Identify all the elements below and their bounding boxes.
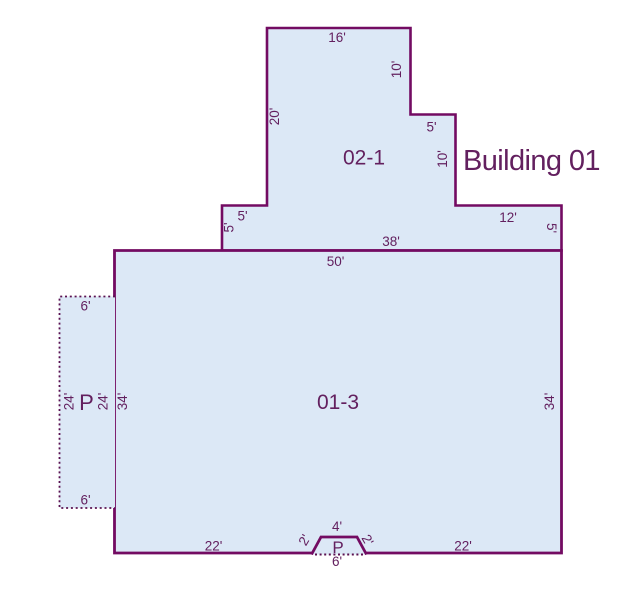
svg-text:24': 24' xyxy=(96,393,111,411)
svg-text:5': 5' xyxy=(237,209,247,224)
svg-text:34': 34' xyxy=(115,393,130,411)
svg-text:38': 38' xyxy=(382,234,400,249)
svg-text:5': 5' xyxy=(426,120,436,135)
svg-text:6': 6' xyxy=(80,299,90,314)
svg-text:22': 22' xyxy=(454,539,472,554)
svg-text:4': 4' xyxy=(332,519,342,534)
svg-text:34': 34' xyxy=(542,393,557,411)
svg-text:20': 20' xyxy=(267,108,282,126)
svg-text:5': 5' xyxy=(222,222,237,232)
svg-text:02-1: 02-1 xyxy=(343,147,385,170)
svg-text:16': 16' xyxy=(328,30,346,45)
svg-text:Building 01: Building 01 xyxy=(463,145,600,177)
svg-text:6': 6' xyxy=(332,554,342,569)
svg-text:12': 12' xyxy=(499,210,517,225)
svg-text:10': 10' xyxy=(435,150,450,168)
svg-text:22': 22' xyxy=(205,539,223,554)
svg-text:24': 24' xyxy=(62,393,77,411)
svg-text:01-3: 01-3 xyxy=(317,391,359,414)
svg-text:50': 50' xyxy=(327,254,345,269)
svg-text:6': 6' xyxy=(80,493,90,508)
svg-text:10': 10' xyxy=(389,61,404,79)
svg-text:5': 5' xyxy=(544,223,559,233)
svg-text:P: P xyxy=(79,390,94,415)
